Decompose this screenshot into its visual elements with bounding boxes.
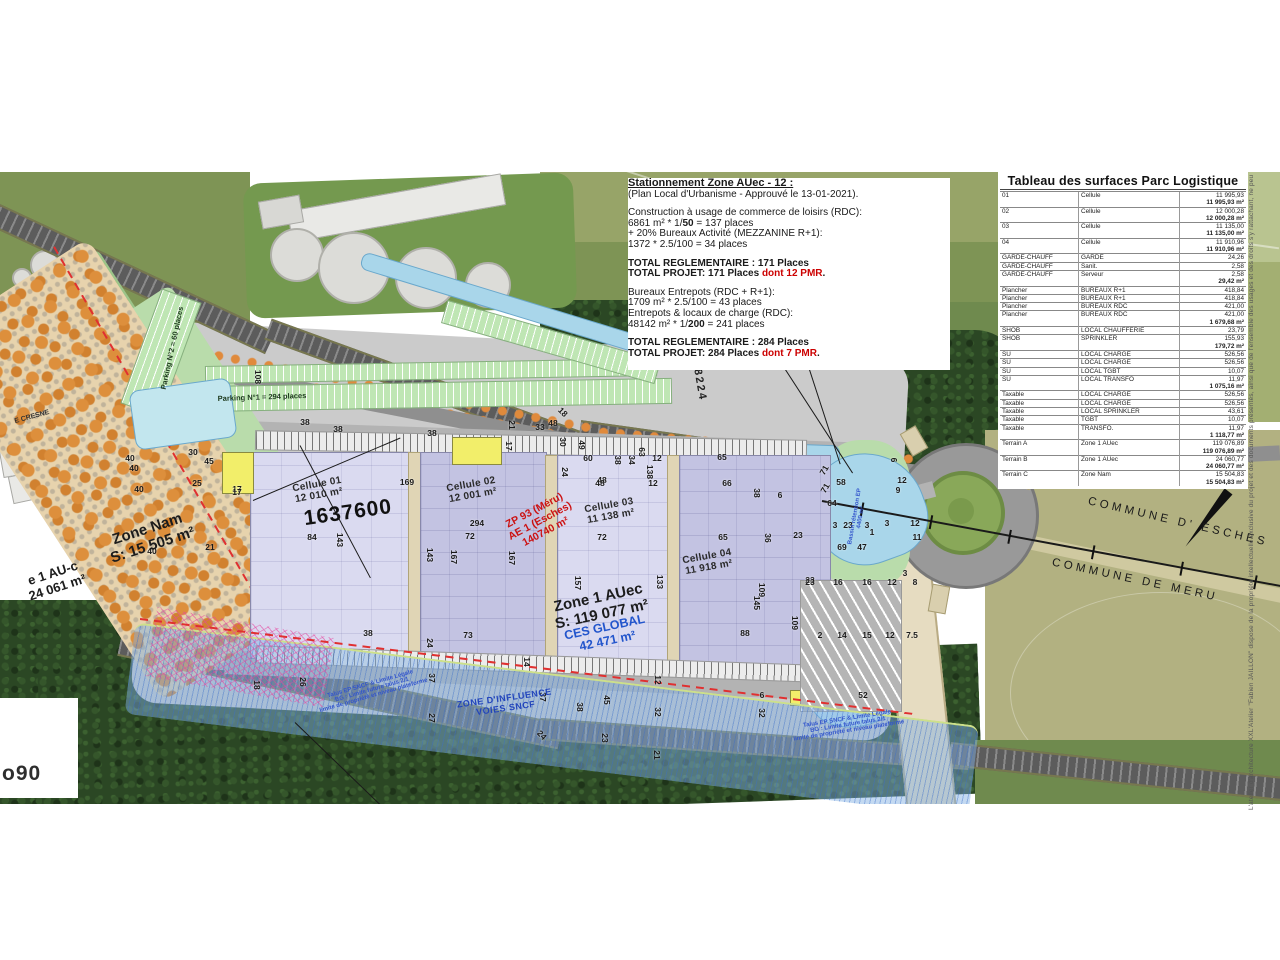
surface-table-row: 119 076,89 m² [1000,448,1246,456]
map-label: Talus EP SNCF & Limite Légale BG : Limit… [791,707,904,742]
map-label: 8224 [691,368,708,402]
surface-table-row: PlancherBUREAUX R+1418,84 [1000,294,1246,302]
surface-table-row: 11 135,00 m² [1000,230,1246,238]
map-label: Cellule 01 12 010 m² [292,475,345,505]
surface-table-row: GARDE-CHAUFFSanit.2,58 [1000,262,1246,270]
surface-table-row: 11 995,93 m² [1000,199,1246,207]
surface-table-title: Tableau des surfaces Parc Logistique [1000,174,1246,190]
surface-table-row: PlancherBUREAUX RDC421,00 [1000,303,1246,311]
map-label: ZP 93 (Méru) AE 1 (Esches) 140740 m² [501,489,580,554]
corner-logo: o90 [0,698,78,798]
surface-table-row: PlancherBUREAUX RDC421,00 [1000,311,1246,319]
map-label: E CRESNE [14,409,50,425]
note-line: 1372 * 2.5/100 = 34 places [628,240,950,251]
map-label: Cellule 04 11 918 m² [682,547,735,577]
map-label: ZONE D'INFLUENCE VOIES SNCF [456,686,553,719]
surface-table-row: 24 060,77 m² [1000,463,1246,471]
surface-table-row: 29,42 m² [1000,278,1246,286]
surface-table-row: SULOCAL TRANSFO11,97 [1000,375,1246,383]
corner-logo-text: o90 [2,762,41,786]
map-label: COMMUNE D' ESCHES [1087,495,1269,548]
surface-table-row: SHOBSPRINKLER155,93 [1000,335,1246,343]
map-label: e 1 AU-c 24 061 m² [22,557,88,604]
surface-table-row: TaxableTRANSFO.11,97 [1000,424,1246,432]
site-plan-page: 4040404030452521171083838382117334818304… [0,0,1280,960]
map-label: Parking N°2 = 60 places [159,306,185,391]
surface-table-row: Terrain BZone 1 AUec24 060,77 [1000,455,1246,463]
surface-table-row: 01Cellule11 995,93 [1000,192,1246,200]
surface-table-row: SULOCAL CHARGE526,56 [1000,359,1246,367]
surface-table-row: 1 679,68 m² [1000,319,1246,327]
note-line: 48142 m² * 1/200 = 241 places [628,320,950,331]
map-label: Zone Nam S: 15 505 m² [103,507,197,566]
surface-table-row: GARDE-CHAUFFGARDE24,26 [1000,254,1246,262]
surface-table-row: TaxableLOCAL CHARGE526,56 [1000,399,1246,407]
surface-table-row: 04Cellule11 910,96 [1000,238,1246,246]
surface-table-row: 1 118,77 m² [1000,432,1246,440]
surface-table-row: 179,72 m² [1000,343,1246,351]
surface-table-row: 11 910,96 m² [1000,246,1246,254]
surface-table-grid: 01Cellule11 995,9311 995,93 m²02Cellule1… [1000,191,1246,486]
note-line: TOTAL PROJET: 284 Places dont 7 PMR. [628,349,950,360]
surface-table-row: TaxableLOCAL SPRINKLER43,61 [1000,408,1246,416]
map-label: COMMUNE DE MERU [1051,557,1219,604]
surface-table-row: 03Cellule11 135,00 [1000,223,1246,231]
surface-table-row: 15 504,83 m² [1000,479,1246,486]
surface-table-row: 02Cellule12 000,28 [1000,207,1246,215]
surface-table-row: TaxableTGBT10,07 [1000,416,1246,424]
map-label: Talus EP SNCF & Limite Légale BG : Limit… [316,666,429,714]
surface-table-row: TaxableLOCAL CHARGE526,56 [1000,391,1246,399]
surface-table-row: SULOCAL TGBT10,07 [1000,367,1246,375]
parking-note-lines: Stationnement Zone AUec - 12 : (Plan Loc… [628,178,950,359]
map-label: Cellule 03 11 138 m² [584,496,637,526]
surface-table-row: Terrain CZone Nam15 504,83 [1000,471,1246,479]
parking-note: Stationnement Zone AUec - 12 : (Plan Loc… [628,178,950,370]
map-label: Cellule 02 12 001 m² [446,475,499,505]
attribution-text: L'atelier d'architecture XXL'Atelier "Fa… [1248,175,1261,810]
note-line: (Plan Local d'Urbanisme - Approuvé le 13… [628,190,950,201]
surface-table-row: 12 000,28 m² [1000,215,1246,223]
map-label: Bassin rétention EP 4400 m² [847,488,869,546]
surface-table: Tableau des surfaces Parc Logistique 01C… [998,172,1248,489]
surface-table-row: SULOCAL CHARGE526,56 [1000,350,1246,358]
surface-table-row: GARDE-CHAUFFServeur2,58 [1000,270,1246,278]
map-label: Parking N°1 = 294 places [218,391,307,403]
note-line: TOTAL PROJET: 171 Places dont 12 PMR. [628,269,950,280]
surface-table-row: SHOBLOCAL CHAUFFERIE23,79 [1000,327,1246,335]
surface-table-row: PlancherBUREAUX R+1418,84 [1000,286,1246,294]
surface-table-row: Terrain AZone 1 AUec119 076,89 [1000,440,1246,448]
surface-table-row: 1 075,16 m² [1000,383,1246,391]
